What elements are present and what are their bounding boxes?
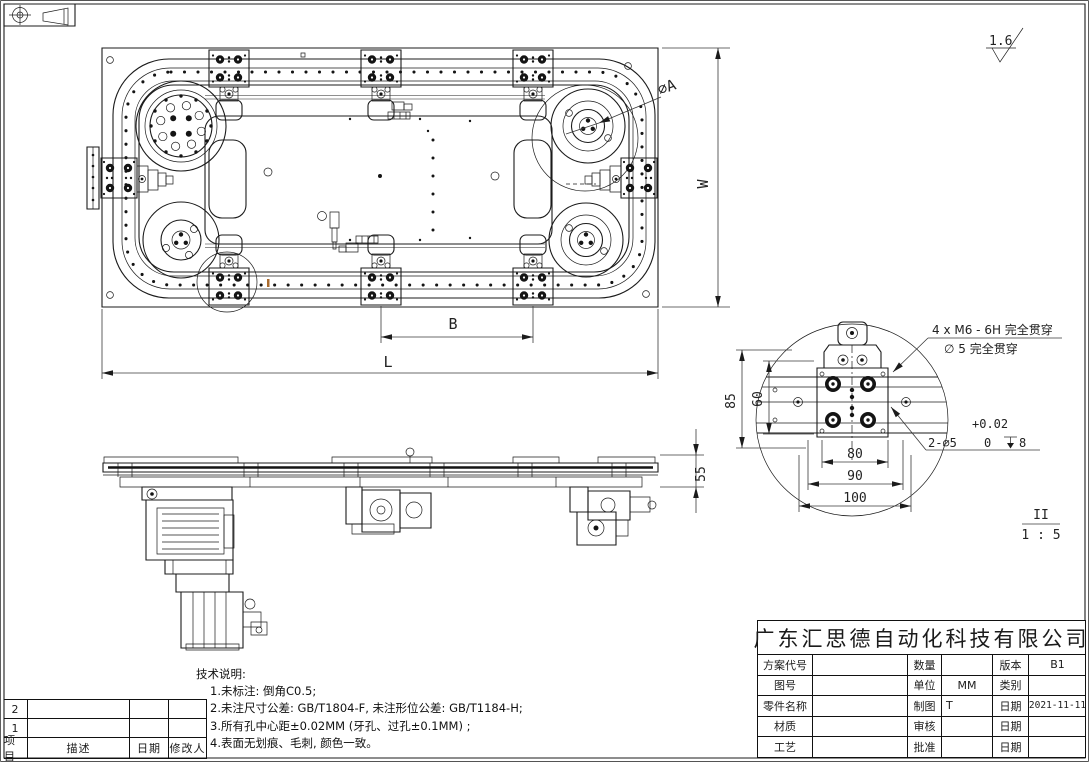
tb-label: 单位 (908, 676, 942, 697)
tolerance-lower: 0 (984, 436, 991, 450)
detail-view: 85 60 80 90 100 (724, 322, 1062, 543)
rev-col-date: 日期 (130, 738, 169, 759)
tb-value-date: 2021-11-11 (1029, 696, 1086, 717)
dim-90-label: 90 (847, 469, 863, 484)
tb-label: 版本 (993, 655, 1029, 676)
tb-value (813, 737, 908, 758)
tb-label: 材质 (758, 717, 813, 738)
pulley-bottom-left (143, 202, 219, 278)
dimension-l: L (102, 309, 658, 379)
callout-thread: 4 x M6 - 6H 完全贯穿 ∅ 5 完全贯穿 (893, 322, 1062, 372)
tb-label: 日期 (993, 696, 1029, 717)
detail-bracket (824, 322, 881, 368)
dimension-55: 55 (660, 429, 709, 513)
rev-row2-no: 2 (4, 700, 28, 719)
rev-row1-editor (169, 719, 207, 738)
tb-value (1029, 717, 1086, 738)
drawing-sheet: 1.6 (0, 0, 1089, 762)
drive-motor-assembly (142, 487, 267, 650)
dim-100-label: 100 (843, 491, 866, 506)
rev-col-editor: 修改人 (169, 738, 207, 759)
rev-row2-date (130, 700, 169, 719)
detail-view-label: II (1033, 508, 1049, 523)
dim-b-label: B (448, 315, 457, 333)
dimension-b: B (381, 306, 533, 343)
tb-label: 工艺 (758, 737, 813, 758)
right-tension-assembly (570, 487, 656, 545)
tb-label: 图号 (758, 676, 813, 697)
tb-value (813, 696, 908, 717)
rev-col-item: 项目 (4, 738, 28, 759)
inner-plate (205, 116, 552, 244)
pulley-top-left (136, 81, 226, 171)
dim-85-label: 85 (724, 393, 739, 409)
detail-boundary-circle-2 (197, 252, 257, 312)
tb-label: 制图 (908, 696, 942, 717)
tb-label: 数量 (908, 655, 942, 676)
tech-note-line: 2.未注尺寸公差: GB/T1804-F, 未注形位公差: GB/T1184-H… (184, 700, 519, 717)
top-view: ∅A W B L (87, 48, 730, 379)
revision-table: 2 1 项目 描述 日期 修改人 (4, 699, 207, 759)
dim-80-label: 80 (847, 447, 863, 462)
technical-notes: 技术说明: 1.未标注: 倒角C0.5; 2.未注尺寸公差: GB/T1804-… (184, 666, 519, 752)
callout-dowel: +0.02 2-∅5 0 8 (891, 407, 1040, 450)
tb-value (813, 676, 908, 697)
surface-finish-value: 1.6 (989, 34, 1012, 49)
detail-block (817, 345, 888, 460)
dim-55-label: 55 (694, 466, 709, 482)
tb-label: 日期 (993, 737, 1029, 758)
thread-note: 4 x M6 - 6H 完全贯穿 (932, 322, 1053, 337)
dowel-note: 2-∅5 (928, 436, 957, 450)
title-block: 广东汇思德自动化科技有限公司 方案代号 数量 版本 B1 图号 单位 MM 类别… (757, 620, 1086, 758)
side-view: 55 (103, 429, 709, 650)
left-side-unit (87, 147, 173, 209)
tb-label: 审核 (908, 717, 942, 738)
tb-label: 批准 (908, 737, 942, 758)
sensor-ring (318, 212, 327, 221)
tech-notes-title: 技术说明: (184, 666, 519, 683)
depth-icon (1004, 437, 1017, 449)
pulley-top-right (532, 85, 638, 191)
tb-value (942, 737, 993, 758)
dimension-dia-a: ∅A (566, 76, 678, 134)
projection-symbol (4, 4, 75, 26)
tb-value (813, 655, 908, 676)
rev-col-desc: 描述 (28, 738, 130, 759)
dim-l-label: L (383, 353, 392, 371)
tb-value (942, 717, 993, 738)
rev-row2-desc (28, 700, 130, 719)
tb-label: 零件名称 (758, 696, 813, 717)
tb-value: T (942, 696, 993, 717)
tb-label: 类别 (993, 676, 1029, 697)
tech-note-line: 3.所有孔中心距±0.02MM (牙孔、过孔±0.1MM) ; (184, 718, 519, 735)
tb-value: B1 (1029, 655, 1086, 676)
detail-scale-label: II 1 : 5 (1021, 508, 1060, 543)
pulley-bottom-right (549, 203, 623, 277)
rev-row1-desc (28, 719, 130, 738)
reference-mark (267, 279, 270, 287)
dim-dia-a-label: ∅A (655, 76, 678, 99)
dim-60-label: 60 (751, 391, 766, 407)
tb-label: 方案代号 (758, 655, 813, 676)
tolerance-upper: +0.02 (972, 417, 1008, 431)
tb-value (1029, 676, 1086, 697)
tech-note-line: 4.表面无划痕、毛刺, 颜色一致。 (184, 735, 519, 752)
rev-row2-editor (169, 700, 207, 719)
rev-row1-date (130, 719, 169, 738)
tb-label: 日期 (993, 717, 1029, 738)
depth-value: 8 (1019, 436, 1026, 450)
surface-finish-symbol: 1.6 (986, 28, 1023, 62)
tb-value (813, 717, 908, 738)
centre-idler-assembly (346, 487, 431, 534)
company-name: 广东汇思德自动化科技有限公司 (758, 621, 1085, 655)
tech-note-line: 1.未标注: 倒角C0.5; (184, 683, 519, 700)
dim-w-label: W (694, 179, 712, 189)
detail-view-scale: 1 : 5 (1021, 528, 1060, 543)
hole-note: ∅ 5 完全贯穿 (944, 341, 1018, 356)
dimension-80: 80 (822, 440, 888, 468)
tb-value (1029, 737, 1086, 758)
tb-value (942, 655, 993, 676)
tb-value: MM (942, 676, 993, 697)
